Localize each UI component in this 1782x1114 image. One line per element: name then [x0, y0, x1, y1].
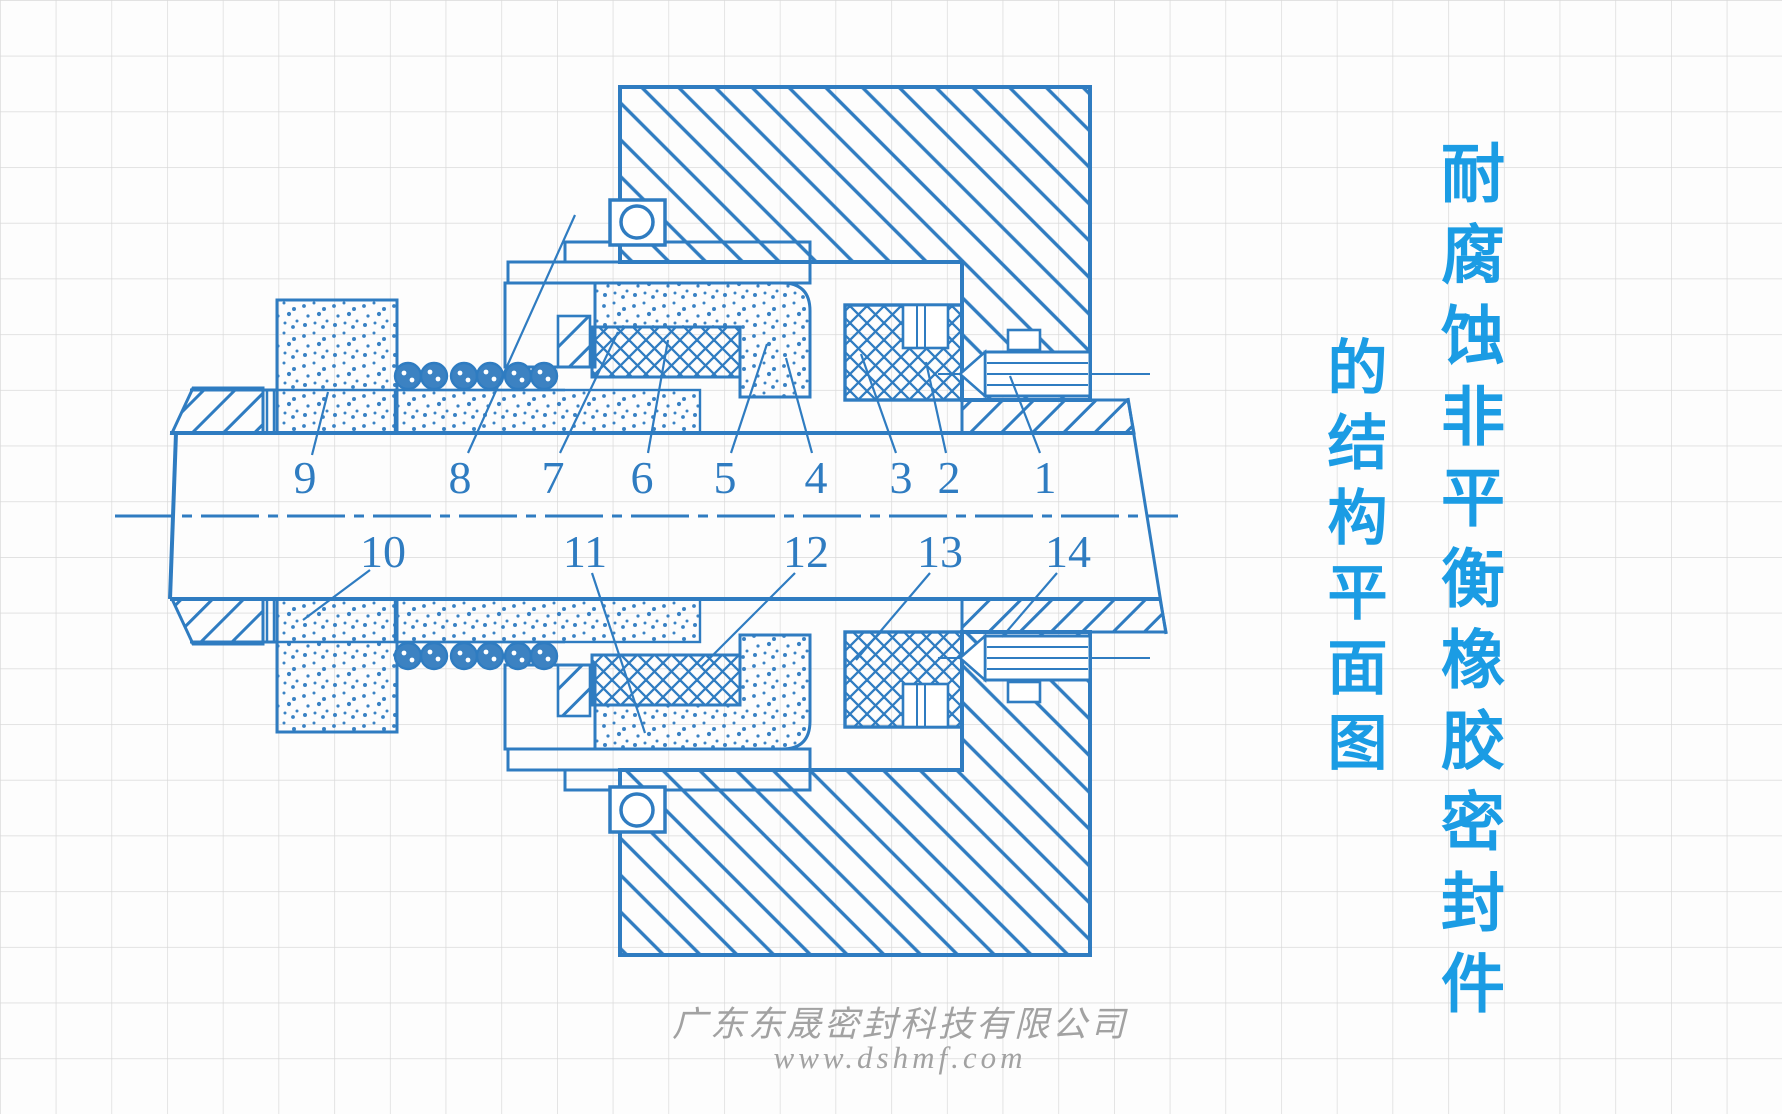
part-label-4: 4: [805, 452, 828, 503]
part-label-12: 12: [783, 526, 829, 577]
upper-o-ring: [621, 206, 653, 238]
part-label-14: 14: [1045, 526, 1091, 577]
watermark-website: www.dshmf.com: [774, 1040, 1027, 1076]
upper-wedge: [558, 316, 590, 367]
title-text-sub: 的结构平面图: [1322, 336, 1382, 786]
lower-o-ring: [621, 794, 653, 826]
upper-shaft-sleeve: [962, 400, 1134, 433]
seal-cross-section-diagram: 9 8 7 6 5 4 3 2 1 10 11 12 13 14: [0, 0, 1782, 1114]
lower-bellows-tail-band: [395, 599, 700, 642]
lower-packing-crosshatch: [592, 655, 740, 705]
lower-wedge: [558, 665, 590, 716]
page: 9 8 7 6 5 4 3 2 1 10 11 12 13 14 耐腐蚀非平衡橡…: [0, 0, 1782, 1114]
part-label-5: 5: [714, 452, 737, 503]
part-label-8: 8: [449, 452, 472, 503]
lower-retainer-stippled: [277, 599, 397, 732]
part-label-2: 2: [938, 452, 961, 503]
part-label-3: 3: [890, 452, 913, 503]
part-label-9: 9: [294, 452, 317, 503]
upper-retainer-stippled: [277, 300, 397, 433]
part-label-10: 10: [360, 526, 406, 577]
title-text-main: 耐腐蚀非平衡橡胶密封件: [1436, 140, 1500, 1031]
part-label-13: 13: [917, 526, 963, 577]
part-label-11: 11: [563, 526, 607, 577]
part-label-7: 7: [542, 452, 565, 503]
part-label-6: 6: [631, 452, 654, 503]
lower-shaft-sleeve: [962, 599, 1166, 632]
part-label-1: 1: [1034, 452, 1057, 503]
